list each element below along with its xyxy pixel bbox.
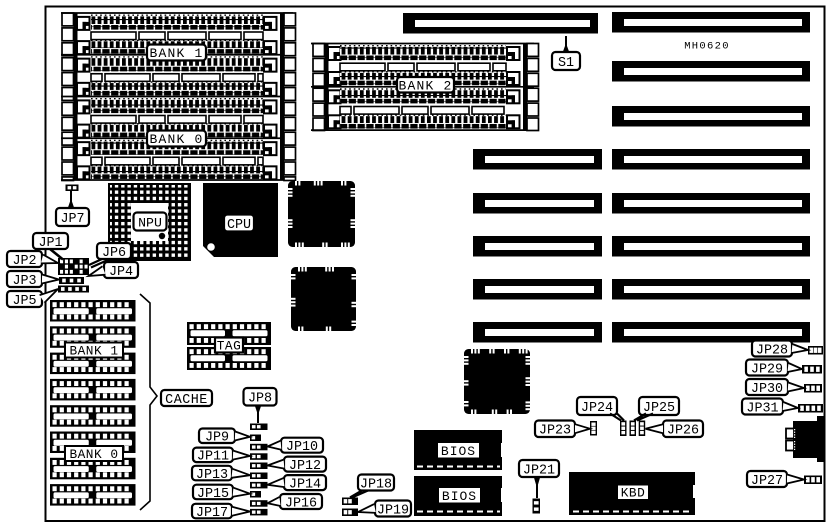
- svg-text:CACHE: CACHE: [165, 393, 208, 408]
- svg-text:JP9: JP9: [205, 431, 229, 446]
- svg-text:BANK 0: BANK 0: [149, 132, 203, 147]
- svg-text:BANK 2: BANK 2: [398, 78, 452, 93]
- svg-text:JP25: JP25: [643, 401, 675, 416]
- svg-text:JP19: JP19: [377, 503, 409, 518]
- svg-text:BIOS: BIOS: [442, 489, 477, 504]
- svg-text:JP24: JP24: [581, 401, 613, 416]
- svg-text:JP8: JP8: [248, 392, 272, 407]
- svg-text:TAG: TAG: [217, 339, 242, 354]
- svg-text:BIOS: BIOS: [441, 444, 476, 459]
- svg-text:JP30: JP30: [751, 382, 783, 397]
- svg-text:JP31: JP31: [746, 401, 778, 416]
- svg-text:JP13: JP13: [196, 468, 228, 483]
- svg-text:JP29: JP29: [751, 362, 783, 377]
- svg-text:JP26: JP26: [667, 424, 699, 439]
- svg-text:BANK 1: BANK 1: [149, 46, 203, 61]
- svg-text:JP15: JP15: [197, 487, 229, 502]
- svg-text:MH0620: MH0620: [684, 41, 730, 53]
- svg-text:JP28: JP28: [756, 343, 788, 358]
- svg-text:JP17: JP17: [196, 506, 228, 521]
- svg-text:JP12: JP12: [289, 459, 321, 474]
- svg-text:CPU: CPU: [227, 218, 251, 233]
- svg-text:KBD: KBD: [621, 485, 646, 500]
- svg-text:JP5: JP5: [12, 294, 36, 309]
- svg-text:JP27: JP27: [751, 474, 783, 489]
- svg-text:JP21: JP21: [523, 463, 555, 478]
- svg-text:JP4: JP4: [109, 265, 133, 280]
- svg-text:JP23: JP23: [539, 424, 571, 439]
- svg-text:JP3: JP3: [12, 274, 36, 289]
- svg-text:JP14: JP14: [289, 477, 321, 492]
- svg-text:NPU: NPU: [138, 215, 162, 230]
- svg-text:BANK 1: BANK 1: [69, 344, 118, 359]
- svg-text:S1: S1: [558, 56, 574, 71]
- svg-text:JP16: JP16: [285, 496, 317, 511]
- svg-text:JP6: JP6: [102, 246, 126, 261]
- svg-text:JP11: JP11: [197, 450, 229, 465]
- svg-text:JP2: JP2: [12, 254, 36, 269]
- svg-text:JP10: JP10: [286, 440, 318, 455]
- svg-text:JP18: JP18: [360, 477, 392, 492]
- svg-text:BANK 0: BANK 0: [69, 447, 118, 462]
- svg-text:JP7: JP7: [60, 212, 84, 227]
